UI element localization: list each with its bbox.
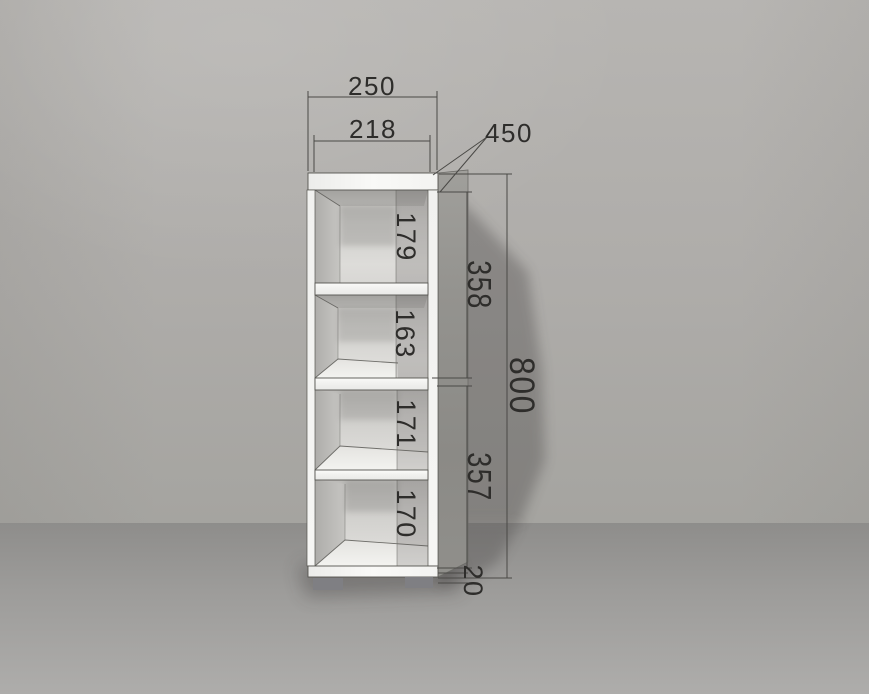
compartment-2-corner-shadow: [338, 308, 396, 342]
shelf-2-front: [315, 378, 428, 390]
shelf-1-front: [315, 283, 428, 295]
dim-compartment-3-label: 171: [391, 399, 421, 449]
dim-overall-width-label: 250: [348, 71, 396, 101]
render-viewport: 250 218 450 179 163 171 170 358 357 800 …: [0, 0, 869, 694]
dim-plinth-label: 20: [458, 564, 488, 597]
dim-lower-section-label: 357: [460, 452, 498, 502]
compartment-1-corner-shadow: [340, 206, 396, 246]
dim-compartment-4-label: 170: [391, 489, 421, 539]
compartment-3-corner-shadow: [340, 390, 398, 420]
shelf-3-front: [315, 470, 428, 480]
cabinet-left-stile: [307, 190, 315, 566]
dim-opening-width-label: 218: [349, 114, 397, 144]
foot-right: [405, 577, 433, 588]
compartment-4-corner-shadow: [345, 480, 398, 512]
dim-depth-label: 450: [485, 118, 533, 148]
dim-compartment-2-label: 163: [390, 309, 420, 359]
dim-compartment-1-label: 179: [391, 212, 421, 262]
cabinet-3d-view: 250 218 450 179 163 171 170 358 357 800 …: [0, 0, 869, 694]
cabinet-top-panel: [308, 173, 438, 190]
dim-upper-section-label: 358: [460, 260, 498, 310]
cabinet-bottom-panel: [308, 566, 438, 577]
foot-left: [313, 578, 343, 590]
cabinet-side-panel: [438, 170, 468, 577]
dim-overall-height-label: 800: [502, 357, 541, 415]
